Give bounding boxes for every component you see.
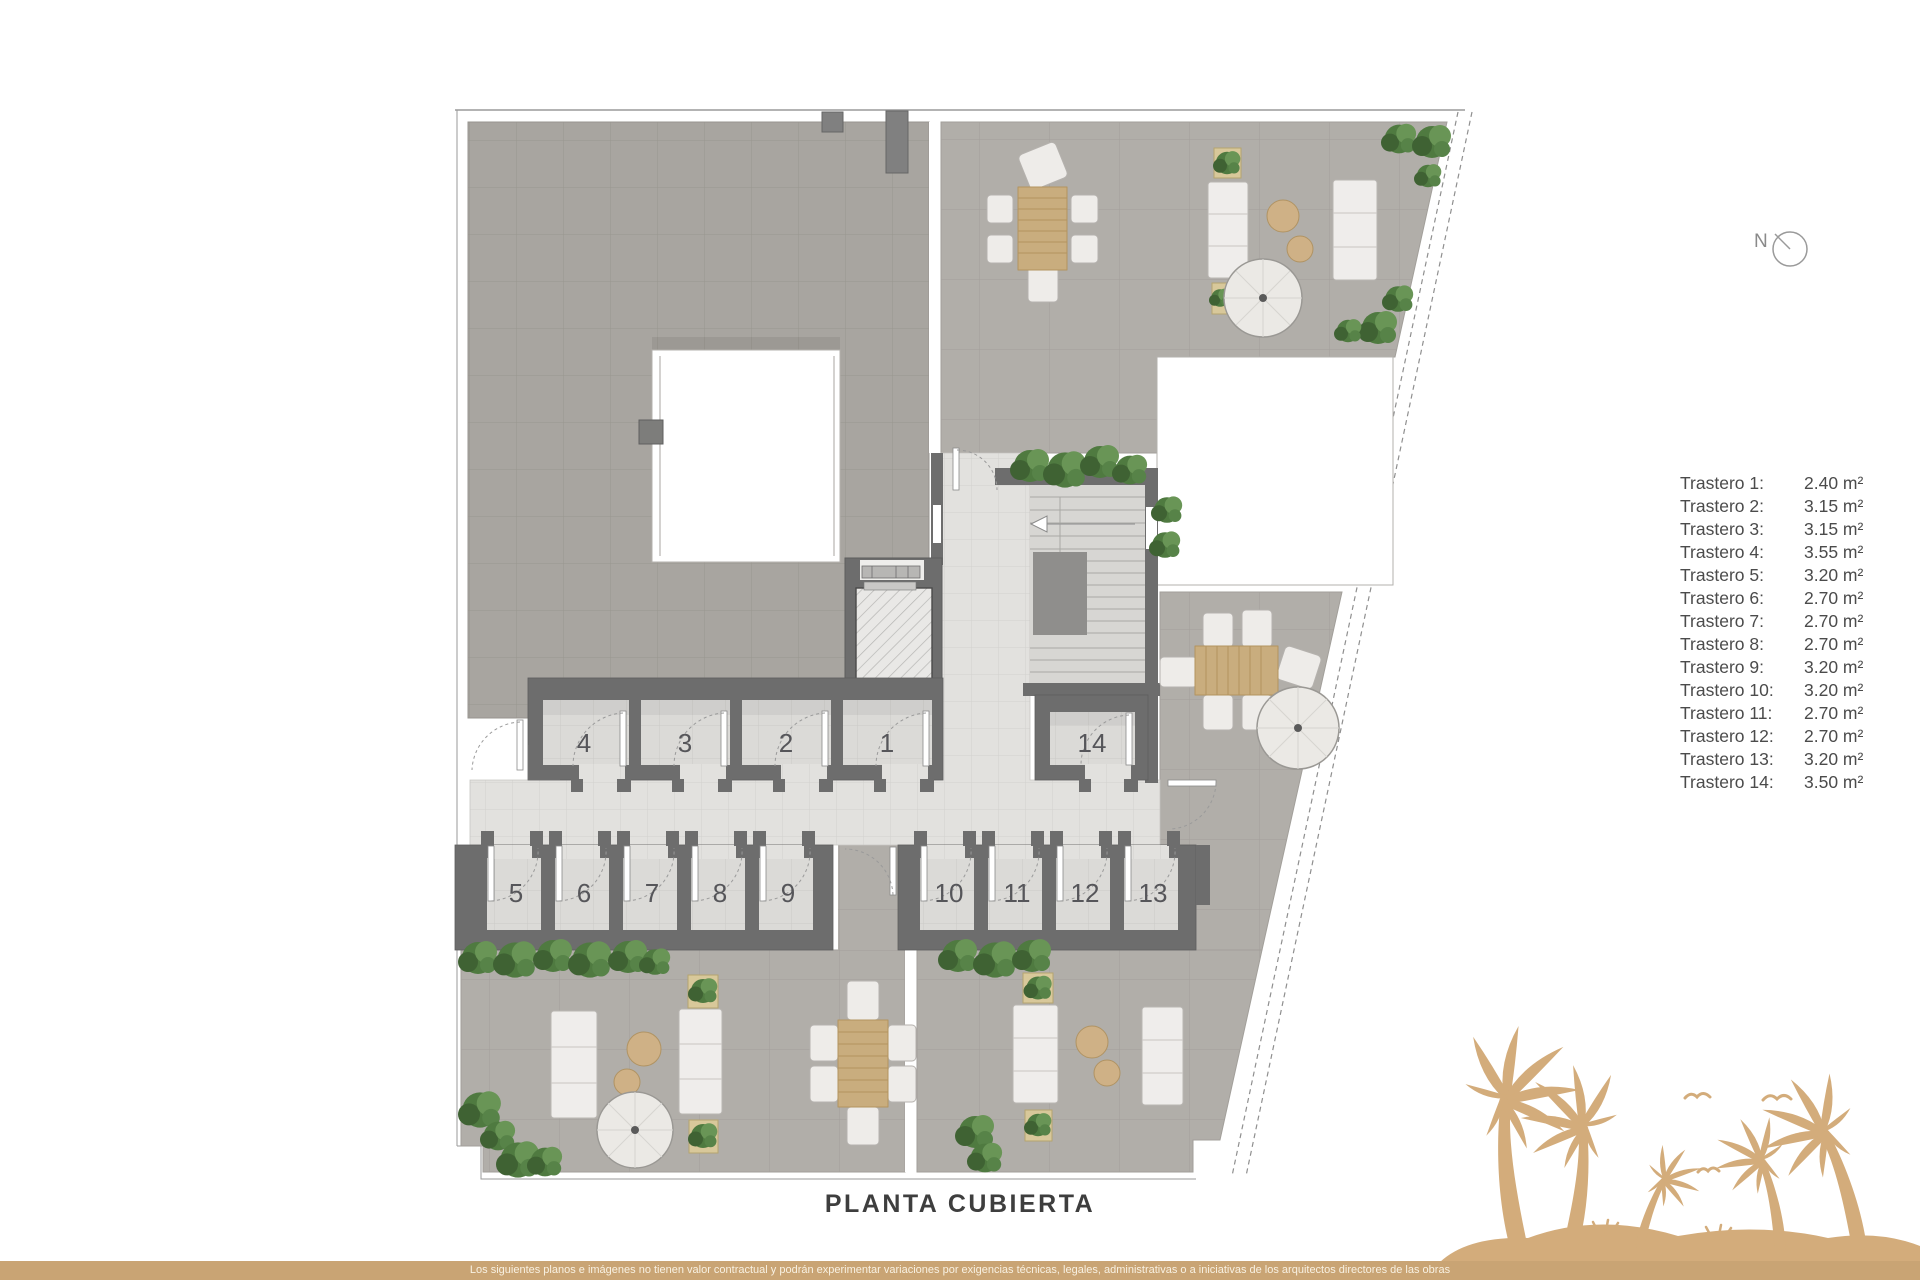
page: 1 2 3 4 5 6 7 8 9 10 11 12 13 14 N	[0, 0, 1920, 1280]
room-number-6: 6	[577, 878, 591, 908]
room-number-13: 13	[1139, 878, 1168, 908]
room-number-9: 9	[781, 878, 795, 908]
legend-item: Trastero 8:2.70 m²	[1680, 633, 1863, 656]
legend-area: 2.70 m²	[1804, 702, 1863, 725]
courtyard-right	[1157, 357, 1393, 585]
stair-landing	[1033, 552, 1087, 635]
legend-item: Trastero 4:3.55 m²	[1680, 541, 1863, 564]
wood-table	[1018, 187, 1067, 270]
legend-area: 3.20 m²	[1804, 748, 1863, 771]
legend-label: Trastero 6:	[1680, 587, 1804, 610]
courtyard-left	[652, 350, 840, 562]
parasol-icon	[1257, 687, 1339, 769]
legend-area: 3.20 m²	[1804, 656, 1863, 679]
legend-area: 3.15 m²	[1804, 495, 1863, 518]
legend-area: 3.55 m²	[1804, 541, 1863, 564]
room-number-1: 1	[880, 728, 894, 758]
legend-item: Trastero 3:3.15 m²	[1680, 518, 1863, 541]
elevator-cab	[856, 588, 932, 680]
room-number-10: 10	[935, 878, 964, 908]
room-number-7: 7	[645, 878, 659, 908]
legend-item: Trastero 7:2.70 m²	[1680, 610, 1863, 633]
legend-label: Trastero 2:	[1680, 495, 1804, 518]
parasol-icon	[1224, 259, 1302, 337]
page-title: PLANTA CUBIERTA	[825, 1190, 1095, 1219]
legend-label: Trastero 12:	[1680, 725, 1804, 748]
legend-item: Trastero 13:3.20 m²	[1680, 748, 1863, 771]
area-legend: Trastero 1:2.40 m² Trastero 2:3.15 m² Tr…	[1680, 472, 1863, 794]
room-number-3: 3	[678, 728, 692, 758]
legend-item: Trastero 12:2.70 m²	[1680, 725, 1863, 748]
legend-label: Trastero 8:	[1680, 633, 1804, 656]
legend-label: Trastero 5:	[1680, 564, 1804, 587]
legend-area: 2.40 m²	[1804, 472, 1863, 495]
compass-label: N	[1754, 231, 1768, 252]
legend-area: 2.70 m²	[1804, 725, 1863, 748]
palm-scenery	[1440, 1018, 1920, 1267]
legend-area: 3.50 m²	[1804, 771, 1863, 794]
footer-bar: Los siguientes planos e imágenes no tien…	[0, 1261, 1920, 1280]
legend-area: 2.70 m²	[1804, 633, 1863, 656]
room-number-2: 2	[779, 728, 793, 758]
floor-plan: 1 2 3 4 5 6 7 8 9 10 11 12 13 14 N	[0, 0, 1920, 1280]
legend-area: 2.70 m²	[1804, 610, 1863, 633]
legend-label: Trastero 7:	[1680, 610, 1804, 633]
legend-item: Trastero 5:3.20 m²	[1680, 564, 1863, 587]
legend-label: Trastero 3:	[1680, 518, 1804, 541]
room-number-8: 8	[713, 878, 727, 908]
room-number-14: 14	[1078, 728, 1107, 758]
elevator	[845, 558, 942, 692]
room-number-5: 5	[509, 878, 523, 908]
legend-label: Trastero 4:	[1680, 541, 1804, 564]
legend-item: Trastero 1:2.40 m²	[1680, 472, 1863, 495]
legend-item: Trastero 11:2.70 m²	[1680, 702, 1863, 725]
legend-area: 3.20 m²	[1804, 679, 1863, 702]
parasol-icon	[597, 1092, 673, 1168]
legend-label: Trastero 10:	[1680, 679, 1804, 702]
legend-item: Trastero 9:3.20 m²	[1680, 656, 1863, 679]
room-number-12: 12	[1071, 878, 1100, 908]
legend-label: Trastero 14:	[1680, 771, 1804, 794]
north-compass-icon: N	[1754, 231, 1807, 266]
legend-item: Trastero 2:3.15 m²	[1680, 495, 1863, 518]
legend-item: Trastero 14:3.50 m²	[1680, 771, 1863, 794]
legend-item: Trastero 6:2.70 m²	[1680, 587, 1863, 610]
room-number-11: 11	[1004, 878, 1031, 908]
legend-item: Trastero 10:3.20 m²	[1680, 679, 1863, 702]
legend-area: 3.15 m²	[1804, 518, 1863, 541]
footer-disclaimer: Los siguientes planos e imágenes no tien…	[0, 1261, 1920, 1280]
legend-area: 3.20 m²	[1804, 564, 1863, 587]
legend-label: Trastero 1:	[1680, 472, 1804, 495]
legend-area: 2.70 m²	[1804, 587, 1863, 610]
room-number-4: 4	[577, 728, 591, 758]
legend-label: Trastero 13:	[1680, 748, 1804, 771]
legend-label: Trastero 9:	[1680, 656, 1804, 679]
legend-label: Trastero 11:	[1680, 702, 1804, 725]
